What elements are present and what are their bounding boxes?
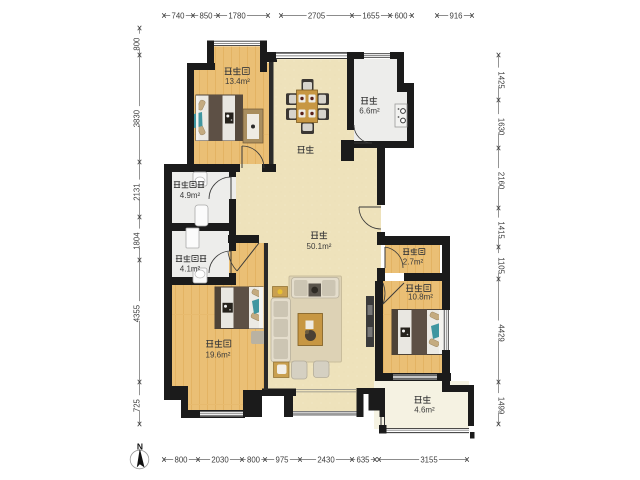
- svg-text:1415: 1415: [497, 221, 506, 239]
- svg-text:6.6m²: 6.6m²: [359, 107, 380, 116]
- svg-text:4.6m²: 4.6m²: [414, 406, 435, 415]
- svg-text:800: 800: [247, 455, 261, 464]
- svg-text:50.1m²: 50.1m²: [307, 242, 332, 251]
- svg-text:800: 800: [174, 455, 188, 464]
- svg-text:1780: 1780: [228, 11, 246, 20]
- svg-text:850: 850: [199, 11, 213, 20]
- svg-text:1804: 1804: [133, 232, 142, 250]
- svg-text:1630: 1630: [497, 118, 506, 136]
- svg-text:2131: 2131: [133, 183, 142, 200]
- svg-text:1655: 1655: [362, 11, 380, 20]
- svg-text:4.1m²: 4.1m²: [180, 265, 201, 274]
- svg-text:2030: 2030: [211, 455, 229, 464]
- svg-text:975: 975: [275, 455, 289, 464]
- svg-text:635: 635: [356, 455, 370, 464]
- svg-text:13.4m²: 13.4m²: [225, 77, 250, 86]
- svg-text:2430: 2430: [317, 455, 335, 464]
- svg-text:725: 725: [133, 398, 142, 412]
- svg-text:1105: 1105: [497, 257, 506, 274]
- svg-text:1499: 1499: [497, 397, 506, 414]
- svg-text:4429: 4429: [497, 324, 506, 341]
- svg-text:2.7m²: 2.7m²: [403, 258, 424, 267]
- svg-text:740: 740: [171, 11, 185, 20]
- svg-text:3155: 3155: [420, 455, 438, 464]
- svg-text:19.6m²: 19.6m²: [206, 351, 231, 360]
- svg-text:2705: 2705: [308, 11, 326, 20]
- svg-text:800: 800: [133, 37, 142, 51]
- svg-text:600: 600: [394, 11, 408, 20]
- svg-text:4.9m²: 4.9m²: [180, 191, 201, 200]
- svg-text:10.8m²: 10.8m²: [408, 293, 433, 302]
- svg-text:3830: 3830: [133, 109, 142, 127]
- svg-text:2160: 2160: [497, 172, 506, 190]
- svg-text:1425: 1425: [497, 71, 506, 89]
- svg-text:4355: 4355: [133, 304, 142, 322]
- svg-text:916: 916: [449, 11, 462, 20]
